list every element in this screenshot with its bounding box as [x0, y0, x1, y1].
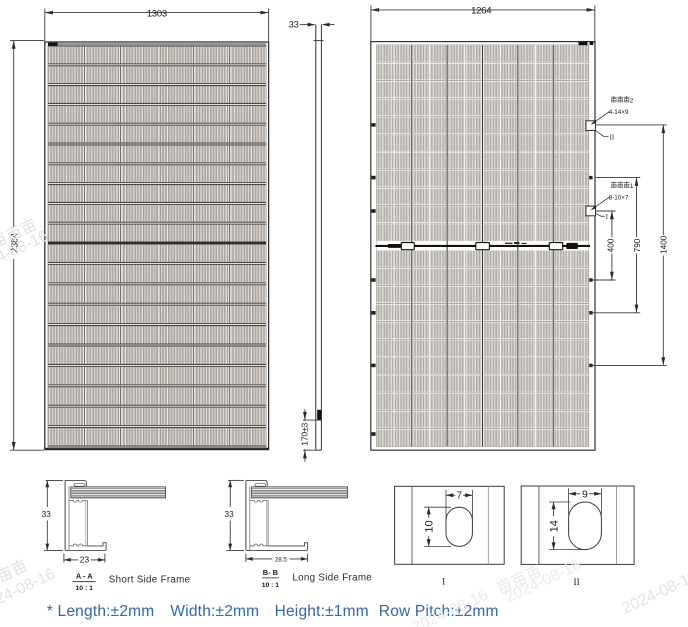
svg-text:10 : 1: 10 : 1: [76, 585, 94, 592]
svg-text:1: 1: [630, 183, 634, 190]
svg-text:28.5: 28.5: [275, 556, 288, 563]
svg-text:170±3: 170±3: [300, 422, 310, 445]
svg-text:10: 10: [424, 520, 436, 532]
svg-text:8-10×7: 8-10×7: [609, 194, 629, 201]
svg-text:Long Side Frame: Long Side Frame: [292, 573, 372, 584]
svg-text:400: 400: [607, 238, 616, 252]
svg-text:1264: 1264: [471, 6, 492, 17]
svg-text:A - A: A - A: [76, 571, 93, 580]
svg-text:I: I: [442, 576, 445, 586]
svg-text:II: II: [610, 134, 615, 141]
svg-text:1400: 1400: [659, 235, 668, 254]
svg-text:790: 790: [633, 238, 642, 252]
svg-text:B- B: B- B: [263, 568, 278, 577]
svg-text:Short Side Frame: Short Side Frame: [109, 575, 191, 586]
svg-text:7: 7: [456, 490, 462, 501]
svg-text:* Length:±2mm: * Length:±2mm: [47, 603, 155, 620]
svg-text:Height:±1mm: Height:±1mm: [275, 603, 369, 620]
svg-text:2: 2: [630, 98, 634, 105]
svg-text:9: 9: [582, 489, 588, 500]
svg-text:1303: 1303: [147, 8, 167, 19]
svg-text:4-14×9: 4-14×9: [609, 109, 629, 116]
svg-text:33: 33: [42, 510, 52, 519]
svg-text:33: 33: [225, 510, 235, 519]
svg-text:23: 23: [80, 555, 90, 565]
svg-text:II: II: [574, 577, 580, 587]
svg-text:Width:±2mm: Width:±2mm: [170, 603, 259, 620]
svg-text:14: 14: [549, 520, 561, 532]
svg-text:33: 33: [289, 20, 299, 30]
svg-text:10 : 1: 10 : 1: [262, 582, 280, 589]
